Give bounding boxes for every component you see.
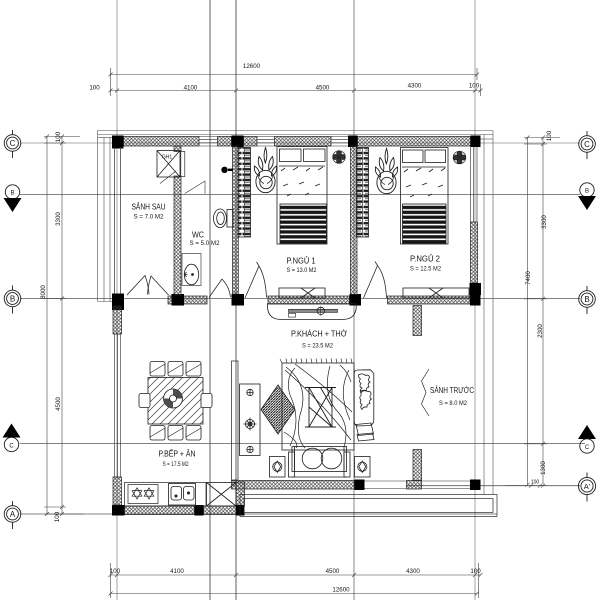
svg-text:4500: 4500 [326, 568, 340, 575]
svg-text:100: 100 [531, 480, 540, 486]
svg-text:GH1: GH1 [162, 155, 173, 161]
svg-text:100: 100 [55, 131, 62, 142]
svg-text:WC: WC [192, 231, 204, 240]
svg-text:S = 23.5 M2: S = 23.5 M2 [302, 343, 333, 350]
svg-text:B: B [10, 191, 14, 197]
svg-text:P.NGỦ 2: P.NGỦ 2 [410, 255, 441, 264]
svg-text:C: C [584, 140, 590, 149]
svg-text:12600: 12600 [243, 63, 261, 70]
svg-text:1300: 1300 [540, 461, 547, 475]
svg-text:S = 17.5 M2: S = 17.5 M2 [163, 461, 189, 468]
svg-text:A: A [10, 510, 16, 519]
svg-text:P.NGỦ 1: P.NGỦ 1 [287, 257, 317, 266]
svg-text:C: C [585, 445, 590, 451]
svg-text:C: C [9, 444, 14, 450]
svg-text:7400: 7400 [525, 271, 532, 285]
svg-text:100: 100 [54, 511, 61, 522]
svg-text:100: 100 [89, 85, 100, 92]
svg-text:B: B [10, 294, 15, 303]
svg-text:C: C [10, 139, 16, 148]
svg-text:8000: 8000 [40, 285, 47, 299]
svg-text:12600: 12600 [332, 587, 350, 594]
svg-text:100: 100 [470, 568, 481, 575]
svg-text:2300: 2300 [537, 324, 544, 338]
svg-text:SẢNH TRƯỚC: SẢNH TRƯỚC [430, 386, 474, 395]
svg-text:4100: 4100 [170, 568, 184, 575]
svg-text:4300: 4300 [408, 83, 422, 90]
svg-text:4300: 4300 [406, 568, 420, 575]
svg-text:S = 8.0 M2: S = 8.0 M2 [439, 400, 467, 407]
svg-text:SẢNH SAU: SẢNH SAU [132, 203, 166, 212]
svg-text:100: 100 [469, 83, 480, 90]
svg-text:A': A' [584, 482, 591, 491]
svg-text:100: 100 [546, 130, 553, 141]
svg-text:B: B [584, 295, 589, 304]
svg-text:3300: 3300 [55, 212, 62, 226]
svg-text:4100: 4100 [184, 85, 198, 92]
svg-text:4500: 4500 [316, 85, 330, 92]
svg-text:P.BẾP + ĂN: P.BẾP + ĂN [159, 449, 196, 459]
svg-text:S = 7.0 M2: S = 7.0 M2 [134, 214, 164, 221]
svg-text:P.KHÁCH + THỜ: P.KHÁCH + THỜ [291, 330, 347, 339]
svg-text:3300: 3300 [541, 215, 548, 229]
svg-text:4500: 4500 [55, 397, 62, 411]
svg-text:S = 13.0 M2: S = 13.0 M2 [287, 267, 317, 274]
svg-text:B: B [585, 189, 589, 195]
svg-text:S = 5.0 M2: S = 5.0 M2 [190, 240, 220, 247]
svg-text:100: 100 [110, 568, 121, 575]
svg-text:S = 12.5 M2: S = 12.5 M2 [410, 266, 441, 273]
